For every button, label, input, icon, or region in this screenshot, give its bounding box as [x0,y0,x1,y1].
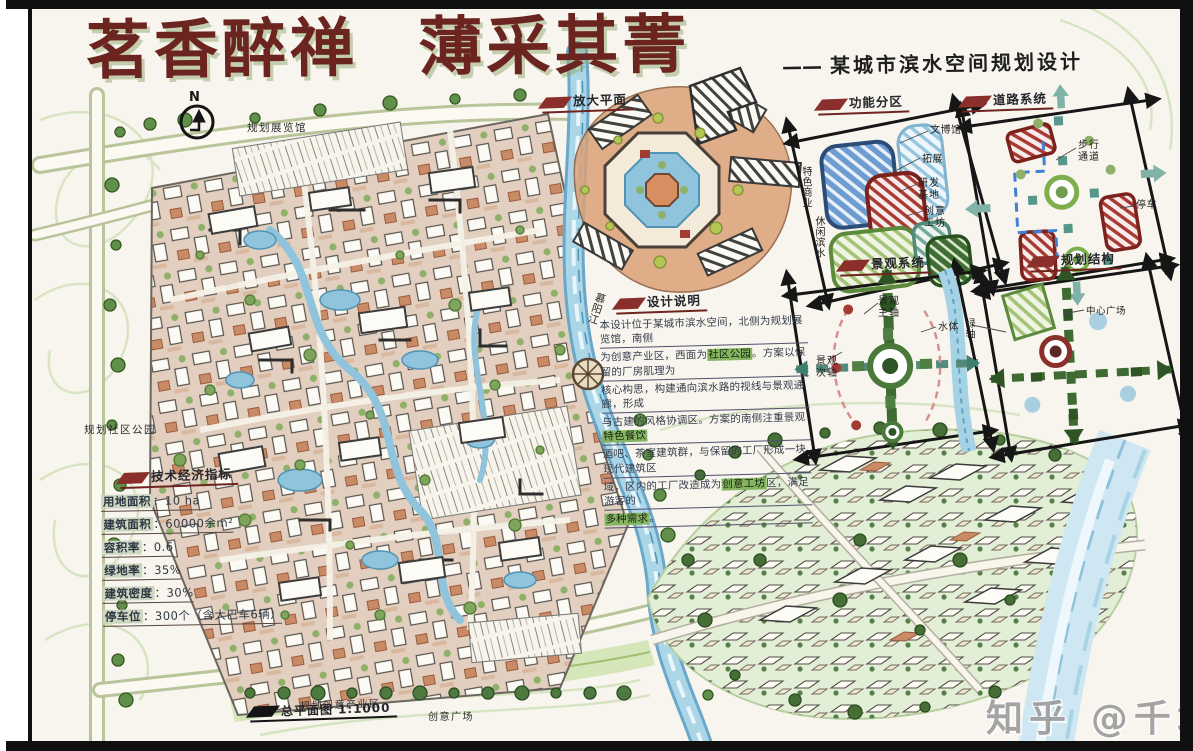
red-marker-icon [836,259,870,271]
anno-creative-workshop: 创意工坊 [924,206,948,230]
black-marker-icon [246,706,280,718]
diagram-label-landscape-system: 景观系统 [840,256,932,276]
frame-border-left [28,7,32,743]
planning-drawing-sheet: 茗香醉禅 薄采其菁 ——某城市滨水空间规划设计 N 规划展览馆 规划社区公园 规… [0,0,1193,751]
label-creative-plaza: 创意广场 [428,708,474,723]
red-marker-icon [958,95,992,107]
indicator-name: 用地面积 [101,494,153,509]
anno-culture-museum: 文博馆 [930,125,962,137]
anno-expansion: 拓展 [922,154,943,166]
design-note-line-6: 多种需求。 [604,507,812,529]
design-note-line-2: 核心构思，构建通向滨水路的视线与景观通廊，形成 [601,378,810,414]
red-marker-icon [538,96,572,108]
design-notes-label: 设计说明 [616,294,708,314]
frame-border-right [1180,0,1193,751]
hand-drawn-artwork [0,0,1193,751]
calligraphy-title-text: 茗香醉禅 薄采其菁 [86,8,691,88]
subtitle-text: 某城市滨水空间规划设计 [830,49,1083,77]
design-note-line-1: 为创意产业区，西面为社区公园。方案以保留的厂房肌理为 [600,346,809,382]
anno-landscape-secondary-axis: 景观次轴 [816,356,840,380]
indicator-row-1: 建筑面积：60000余m² [101,515,233,535]
frame-border-bottom [6,741,1193,751]
watermark: 知乎 @千城 [986,688,1193,742]
design-note-line-4: 酒吧、茶室建筑群，与保留的工厂形成一块现代建筑区 [603,443,812,479]
waterwheel [573,359,603,389]
indicator-name: 建筑面积 [101,517,153,532]
indicator-value: ：60000余m² [153,516,233,531]
anno-water-body: 水体 [938,322,959,334]
indicator-name: 容积率 [102,540,142,555]
design-note-line-3: 与古建的风格协调区。方案的南侧注重景观特色餐饮 [602,410,811,446]
indicator-value: ：10 ha [153,493,200,508]
sheet-scale: 1:1000 [338,702,391,716]
indicator-name: 绿地率 [102,563,142,578]
diagram-label-planning-structure: 规划结构 [1030,252,1122,272]
anno-rd-base: 研发基地 [918,178,942,202]
diagram-label-road-system: 道路系统 [962,92,1054,112]
red-marker-icon [116,472,150,484]
project-subtitle: ——某城市滨水空间规划设计 [782,45,1083,79]
page-title: 茗香醉禅 薄采其菁 [86,0,807,92]
indicator-value: ：0.6 [142,540,174,555]
indicator-name: 停车位 [103,609,143,624]
label-community-park: 规划社区公园 [84,422,156,437]
north-label: N [189,90,200,105]
indicator-row-0: 用地面积：10 ha [101,492,200,512]
indicator-row-5: 停车位：300个（含大巴车6辆） [103,606,283,627]
indicator-row-4: 建筑密度：30% [102,584,193,604]
anno-leisure-waterfront: 休闲滨水 [812,216,824,258]
technical-indicators-list: 用地面积：10 ha建筑面积：60000余m²容积率：0.6绿地率：35%建筑密… [101,490,323,632]
anno-green-axis: 绿轴 [962,318,974,339]
indicator-row-3: 绿地率：35% [102,562,181,581]
indicator-value: ：30% [154,585,193,600]
design-notes-paragraph: 本设计位于某城市滨水空间，北侧为规划展览馆，南侧为创意产业区，西面为社区公园。方… [599,313,812,531]
anno-central-plaza: 中心广场 [1086,306,1126,317]
label-exhibition-hall: 规划展览馆 [247,120,307,135]
indicator-name: 建筑密度 [102,586,154,601]
indicator-value: ：300个（含大巴车6辆） [143,607,282,623]
anno-parking: 停车 [1136,200,1157,212]
design-note-line-5: 域，区内的工厂改造成为创意工坊区，满足游客的 [603,475,812,511]
subtitle-dash: —— [782,54,822,79]
red-marker-icon [612,297,646,309]
anno-featured-commerce: 特色商业 [799,166,811,208]
diagram-label-function-zoning: 功能分区 [818,95,910,115]
frame-border-top [6,0,1193,9]
anno-landscape-main-axis: 景观主轴 [878,296,902,320]
red-marker-icon [1026,255,1060,267]
enlarged-plan-label: 放大平面 [542,93,634,113]
design-note-line-0: 本设计位于某城市滨水空间，北侧为规划展览馆，南侧 [599,313,808,349]
indicator-value: ：35% [142,563,181,578]
anno-pedestrian-path: 步行通道 [1078,140,1102,164]
indicator-row-2: 容积率：0.6 [102,539,174,558]
red-marker-icon [814,98,848,110]
